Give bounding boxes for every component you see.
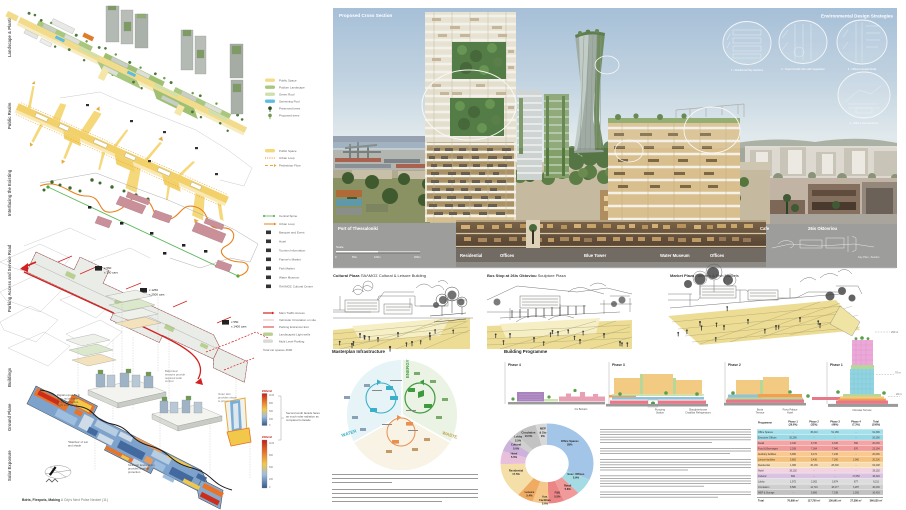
svg-text:20,290: 20,290 — [789, 437, 797, 440]
svg-text:Total: Total — [758, 500, 764, 503]
svg-text:19,102: 19,102 — [789, 470, 797, 473]
svg-text:(26.0%): (26.0%) — [789, 424, 798, 427]
svg-text:Urban Loop: Urban Loop — [279, 156, 295, 160]
svg-text:Multi Level Parking: Multi Level Parking — [279, 339, 305, 343]
svg-text:Water Museum: Water Museum — [279, 276, 300, 280]
svg-text:(32%): (32%) — [811, 424, 818, 427]
svg-text:Proposed trees: Proposed trees — [279, 114, 300, 118]
svg-text:8,472: 8,472 — [811, 453, 818, 456]
svg-text:Hotel: Hotel — [787, 411, 793, 415]
svg-text:MEP: MEP — [540, 428, 546, 431]
svg-text:28%: 28% — [567, 444, 573, 447]
svg-text:night time space: night time space — [57, 403, 78, 407]
svg-text:Offices: Offices — [710, 253, 725, 258]
svg-text:2 - Tower Double Skin with Veg: 2 - Tower Double Skin with Vegetation — [781, 67, 825, 71]
svg-text:2,340: 2,340 — [790, 442, 797, 445]
svg-text:Office Spaces: Office Spaces — [758, 431, 774, 434]
svg-text:Water Museum: Water Museum — [660, 253, 690, 258]
svg-text:14,716: 14,716 — [810, 486, 818, 489]
svg-text:8,580: 8,580 — [790, 486, 797, 489]
svg-text:Leisure facilities: Leisure facilities — [758, 459, 776, 462]
svg-text:Scale: Scale — [336, 245, 344, 249]
svg-text:6,960: 6,960 — [790, 453, 797, 456]
svg-text:2.5%: 2.5% — [515, 439, 522, 442]
svg-text:27,386 m²: 27,386 m² — [850, 499, 862, 503]
svg-text:Masterplan Infrastructure: Masterplan Infrastructure — [332, 349, 386, 354]
svg-text:Chatillas Refrigerators: Chatillas Refrigerators — [685, 411, 711, 415]
svg-text:(7.2%): (7.2%) — [852, 424, 860, 427]
svg-text:Nicosias Terrace: Nicosias Terrace — [852, 408, 872, 412]
svg-text:1100: 1100 — [269, 394, 275, 397]
svg-text:Phase 2: Phase 2 — [728, 363, 741, 367]
svg-text:19,102: 19,102 — [872, 470, 880, 473]
svg-text:877: 877 — [854, 481, 859, 484]
svg-text:70,895 m²: 70,895 m² — [787, 499, 799, 503]
svg-text:Buildings: Buildings — [7, 367, 12, 387]
svg-text:Residential: Residential — [509, 470, 524, 473]
svg-text:5.0%: 5.0% — [511, 456, 518, 459]
svg-text:20,036: 20,036 — [872, 442, 880, 445]
svg-text:Circulation: Circulation — [758, 486, 770, 489]
svg-text:5,430: 5,430 — [811, 459, 818, 462]
svg-text:Cultural Plaza ΠΑΛΜΟΣ Cultural: Cultural Plaza ΠΑΛΜΟΣ Cultural & Leisure… — [333, 273, 426, 278]
svg-text:117,750 m²: 117,750 m² — [808, 499, 821, 503]
svg-text:Circulation: Circulation — [521, 431, 536, 434]
svg-text:Cafe: Cafe — [760, 226, 770, 231]
svg-text:control: control — [165, 379, 174, 383]
svg-text:Hotel: Hotel — [511, 453, 518, 456]
svg-text:7,364: 7,364 — [811, 448, 818, 451]
svg-text:Retail: Retail — [758, 442, 765, 445]
svg-text:ENERGY: ENERGY — [405, 359, 410, 378]
svg-text:Exec. Offices: Exec. Offices — [568, 473, 585, 476]
svg-text:2,208: 2,208 — [790, 448, 797, 451]
svg-text:5.9%: 5.9% — [573, 477, 580, 480]
svg-text:F&B: F&B — [555, 492, 561, 495]
svg-text:45,210: 45,210 — [810, 431, 818, 434]
svg-text:& Sto: & Sto — [539, 431, 547, 434]
svg-text:ΠΑΛΜΟΣ Cultural Center: ΠΑΛΜΟΣ Cultural Center — [279, 285, 313, 289]
svg-text:Key Plan - Section: Key Plan - Section — [858, 255, 880, 259]
svg-text:7,940: 7,940 — [832, 448, 839, 451]
svg-text:Facilities: Facilities — [539, 499, 551, 502]
svg-text:x 1400 cars: x 1400 cars — [231, 324, 247, 328]
svg-text:Residential: Residential — [460, 253, 482, 258]
svg-text:20,696: 20,696 — [872, 453, 880, 456]
svg-text:36,136: 36,136 — [810, 464, 818, 467]
svg-text:Auxiliary facilities: Auxiliary facilities — [758, 453, 777, 456]
svg-text:Fix Bozaris: Fix Bozaris — [575, 407, 589, 411]
svg-text:26is Oktovriou: 26is Oktovriou — [808, 226, 838, 231]
svg-text:Retail: Retail — [564, 485, 572, 488]
svg-text:100m: 100m — [374, 255, 381, 259]
svg-text:10.5%: 10.5% — [525, 435, 533, 438]
svg-text:20,236: 20,236 — [872, 459, 880, 462]
svg-text:91,396: 91,396 — [872, 431, 880, 434]
svg-text:Programme: Programme — [758, 422, 773, 425]
svg-text:5.6%: 5.6% — [542, 503, 549, 506]
svg-text:(100%): (100%) — [872, 424, 880, 427]
svg-text:Lobby: Lobby — [514, 436, 523, 439]
svg-text:Port of Thessaloniki: Port of Thessaloniki — [338, 226, 378, 231]
svg-text:590: 590 — [854, 442, 859, 445]
svg-text:1 - Residential Sky Gardens: 1 - Residential Sky Gardens — [731, 68, 764, 72]
svg-text:Terrace: Terrace — [756, 411, 765, 415]
svg-text:Food & Beverages: Food & Beverages — [758, 448, 779, 451]
svg-text:Preserved trees: Preserved trees — [279, 107, 301, 111]
svg-text:Podium Landscape: Podium Landscape — [279, 86, 305, 90]
svg-text:5.5%: 5.5% — [554, 495, 561, 498]
svg-text:x 560: x 560 — [104, 266, 112, 270]
svg-text:and shade: and shade — [68, 443, 82, 447]
svg-text:Total car spaces 4600: Total car spaces 4600 — [263, 348, 293, 352]
svg-text:x 550: x 550 — [231, 320, 239, 324]
svg-text:5.4%: 5.4% — [526, 495, 533, 498]
svg-text:7,246: 7,246 — [832, 453, 839, 456]
svg-text:Residential: Residential — [758, 464, 770, 467]
svg-text:Landscaped Light wells: Landscaped Light wells — [279, 332, 311, 336]
svg-text:Swimming Pool: Swimming Pool — [279, 100, 300, 104]
svg-text:1,972: 1,972 — [790, 481, 797, 484]
svg-text:7,290: 7,290 — [832, 459, 839, 462]
svg-text:Parking Entrance/ Exit: Parking Entrance/ Exit — [279, 325, 309, 329]
svg-text:2,362: 2,362 — [811, 481, 818, 484]
svg-text:Interfacing the Existing: Interfacing the Existing — [7, 169, 12, 216]
svg-text:5,866: 5,866 — [811, 492, 818, 495]
svg-text:3 - Offices Facade Detail: 3 - Offices Facade Detail — [848, 67, 877, 71]
svg-text:5.0%: 5.0% — [513, 447, 520, 450]
svg-text:Aux.: Aux. — [542, 495, 548, 498]
svg-text:18,277: 18,277 — [831, 486, 839, 489]
svg-text:MEP & Storage: MEP & Storage — [758, 492, 775, 495]
svg-text:70 m: 70 m — [895, 371, 901, 375]
svg-text:Fish Market: Fish Market — [279, 267, 295, 271]
svg-text:Central Spine: Central Spine — [279, 214, 298, 218]
svg-text:1,592: 1,592 — [853, 492, 860, 495]
svg-text:Tourism Information: Tourism Information — [279, 249, 306, 253]
svg-text:28,300: 28,300 — [831, 464, 839, 467]
svg-text:Building Programme: Building Programme — [504, 349, 548, 354]
svg-text:136,961 m²: 136,961 m² — [829, 499, 842, 503]
svg-text:500: 500 — [269, 410, 274, 413]
svg-text:Phase 3: Phase 3 — [612, 363, 625, 367]
svg-text:1,386: 1,386 — [790, 464, 797, 467]
svg-text:Lobby: Lobby — [758, 481, 765, 484]
svg-text:kWh/m2: kWh/m2 — [262, 389, 273, 393]
svg-text:200: 200 — [269, 418, 274, 421]
svg-text:5,882: 5,882 — [790, 459, 797, 462]
svg-text:3,287: 3,287 — [853, 486, 860, 489]
svg-text:Farmer's Market: Farmer's Market — [279, 258, 301, 262]
svg-text:x 1250: x 1250 — [149, 288, 158, 292]
svg-text:2,960: 2,960 — [853, 459, 860, 462]
svg-text:(46%): (46%) — [832, 424, 839, 427]
svg-text:Vehicular Circulation on site: Vehicular Circulation on site — [279, 318, 316, 322]
svg-text:20 m: 20 m — [896, 392, 902, 396]
svg-text:23,194: 23,194 — [872, 448, 880, 451]
svg-text:Environmental Design Strategie: Environmental Design Strategies — [821, 14, 893, 19]
svg-text:17,650: 17,650 — [852, 475, 860, 478]
svg-text:4 - Offices Internal Atrium: 4 - Offices Internal Atrium — [849, 121, 878, 125]
svg-text:Hotel: Hotel — [279, 240, 286, 244]
svg-text:9,211: 9,211 — [873, 481, 879, 484]
svg-text:40,036: 40,036 — [872, 486, 880, 489]
svg-text:Cultural: Cultural — [758, 475, 767, 478]
svg-text:Blue Tower: Blue Tower — [584, 253, 607, 258]
svg-text:kWh/m2: kWh/m2 — [262, 435, 273, 439]
svg-text:7,338: 7,338 — [832, 492, 839, 495]
svg-text:50m: 50m — [352, 255, 357, 259]
svg-text:Urban Loop: Urban Loop — [279, 222, 295, 226]
svg-text:Main Traffic Access: Main Traffic Access — [279, 311, 305, 315]
svg-text:870: 870 — [854, 448, 859, 451]
svg-text:200 m: 200 m — [891, 330, 898, 334]
svg-text:9,336: 9,336 — [832, 442, 839, 445]
svg-text:51,186: 51,186 — [831, 431, 839, 434]
svg-text:Pedestrian Flow: Pedestrian Flow — [279, 164, 301, 168]
svg-text:64,208: 64,208 — [872, 464, 880, 467]
svg-text:Landscape & Planting: Landscape & Planting — [7, 13, 12, 57]
svg-text:Public Space: Public Space — [279, 149, 297, 153]
svg-text:Bdris, Flexpots, Making A City: Bdris, Flexpots, Making A City's Next Pu… — [22, 498, 108, 502]
svg-text:Station: Station — [656, 411, 665, 415]
svg-text:Proposed Cross Section: Proposed Cross Section — [339, 13, 393, 18]
svg-text:500: 500 — [269, 466, 274, 469]
svg-text:x 700 cars: x 700 cars — [104, 270, 118, 274]
svg-text:Phase 4: Phase 4 — [508, 363, 521, 367]
svg-text:800: 800 — [269, 454, 274, 457]
svg-text:Ground Plane: Ground Plane — [7, 403, 12, 431]
svg-text:protection: protection — [128, 470, 141, 474]
svg-text:8,730: 8,730 — [811, 442, 818, 445]
svg-text:Hotel: Hotel — [758, 470, 764, 473]
svg-text:Leisure: Leisure — [525, 491, 535, 494]
svg-text:5.8%: 5.8% — [565, 488, 572, 491]
svg-text:Public Space: Public Space — [279, 79, 297, 83]
svg-text:Banquet and Event: Banquet and Event — [279, 231, 305, 235]
svg-text:20,290: 20,290 — [872, 437, 880, 440]
svg-text:compared to facade: compared to facade — [286, 418, 311, 422]
svg-text:3,874: 3,874 — [832, 481, 839, 484]
svg-text:Bus Stop at 26is Oktoviou Scul: Bus Stop at 26is Oktoviou Sculpture Plaz… — [487, 273, 566, 278]
svg-text:Offices: Offices — [500, 253, 515, 258]
svg-text:800: 800 — [269, 402, 274, 405]
svg-text:18,246: 18,246 — [872, 475, 880, 478]
svg-text:17.5%: 17.5% — [512, 473, 520, 476]
svg-text:892: 892 — [791, 475, 796, 478]
svg-text:366,035 m²: 366,035 m² — [870, 499, 883, 503]
svg-text:Green Roof: Green Roof — [279, 93, 295, 97]
svg-text:200: 200 — [269, 478, 274, 481]
svg-text:200m: 200m — [414, 255, 421, 259]
svg-text:Solar Exposure: Solar Exposure — [7, 450, 12, 481]
svg-text:Executive Offices: Executive Offices — [758, 437, 777, 440]
svg-text:Office Spaces: Office Spaces — [561, 440, 579, 443]
svg-text:Public Realm: Public Realm — [7, 102, 12, 129]
svg-text:1100: 1100 — [269, 442, 275, 445]
svg-text:16,403: 16,403 — [872, 492, 880, 495]
svg-text:Phase 1: Phase 1 — [830, 363, 843, 367]
svg-text:Cultural: Cultural — [511, 444, 521, 447]
